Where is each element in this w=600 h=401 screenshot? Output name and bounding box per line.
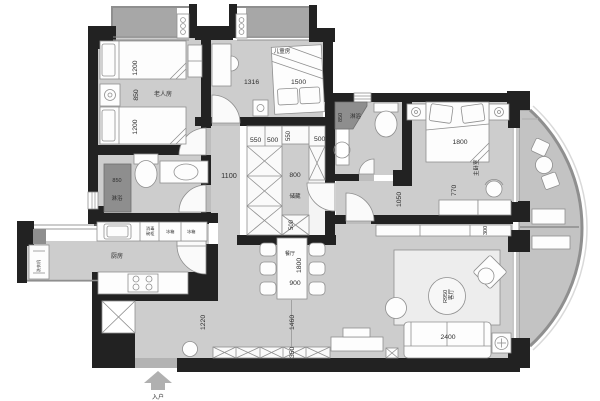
svg-text:储藏: 储藏 xyxy=(289,192,301,200)
svg-text:1500: 1500 xyxy=(291,79,306,86)
svg-text:550: 550 xyxy=(286,130,292,141)
svg-text:900: 900 xyxy=(289,280,301,287)
svg-text:770: 770 xyxy=(451,184,458,196)
svg-text:冰箱: 冰箱 xyxy=(166,228,174,235)
svg-text:300: 300 xyxy=(483,226,489,235)
svg-text:850: 850 xyxy=(133,89,140,101)
svg-text:洗衣机: 洗衣机 xyxy=(35,260,41,272)
svg-text:500: 500 xyxy=(289,219,295,230)
svg-text:550: 550 xyxy=(250,137,262,144)
svg-text:主卧室: 主卧室 xyxy=(472,159,480,176)
svg-text:2400: 2400 xyxy=(440,334,455,341)
svg-text:客厅: 客厅 xyxy=(447,288,455,300)
svg-text:1200: 1200 xyxy=(132,60,139,75)
svg-text:850: 850 xyxy=(338,113,344,122)
svg-text:1050: 1050 xyxy=(396,192,403,207)
svg-text:350: 350 xyxy=(289,346,296,358)
svg-text:1200: 1200 xyxy=(132,119,139,134)
svg-text:老人房: 老人房 xyxy=(154,90,172,98)
svg-text:餐厅: 餐厅 xyxy=(285,250,295,257)
svg-text:500: 500 xyxy=(267,137,279,144)
svg-text:厨房: 厨房 xyxy=(111,252,123,260)
svg-text:入户: 入户 xyxy=(152,393,164,401)
svg-text:1460: 1460 xyxy=(289,315,296,330)
svg-text:1220: 1220 xyxy=(200,315,207,330)
svg-text:碗柜: 碗柜 xyxy=(146,230,154,237)
svg-text:冰箱: 冰箱 xyxy=(187,228,195,235)
svg-text:1800: 1800 xyxy=(296,258,303,273)
svg-text:500: 500 xyxy=(314,136,326,143)
svg-text:淋浴: 淋浴 xyxy=(111,194,123,202)
svg-text:800: 800 xyxy=(289,172,301,179)
svg-text:1316: 1316 xyxy=(244,79,259,86)
svg-text:1800: 1800 xyxy=(452,139,467,146)
svg-text:1100: 1100 xyxy=(221,171,237,180)
svg-text:淋浴: 淋浴 xyxy=(350,112,362,120)
svg-text:儿童房: 儿童房 xyxy=(274,47,291,55)
svg-text:850: 850 xyxy=(112,178,121,184)
